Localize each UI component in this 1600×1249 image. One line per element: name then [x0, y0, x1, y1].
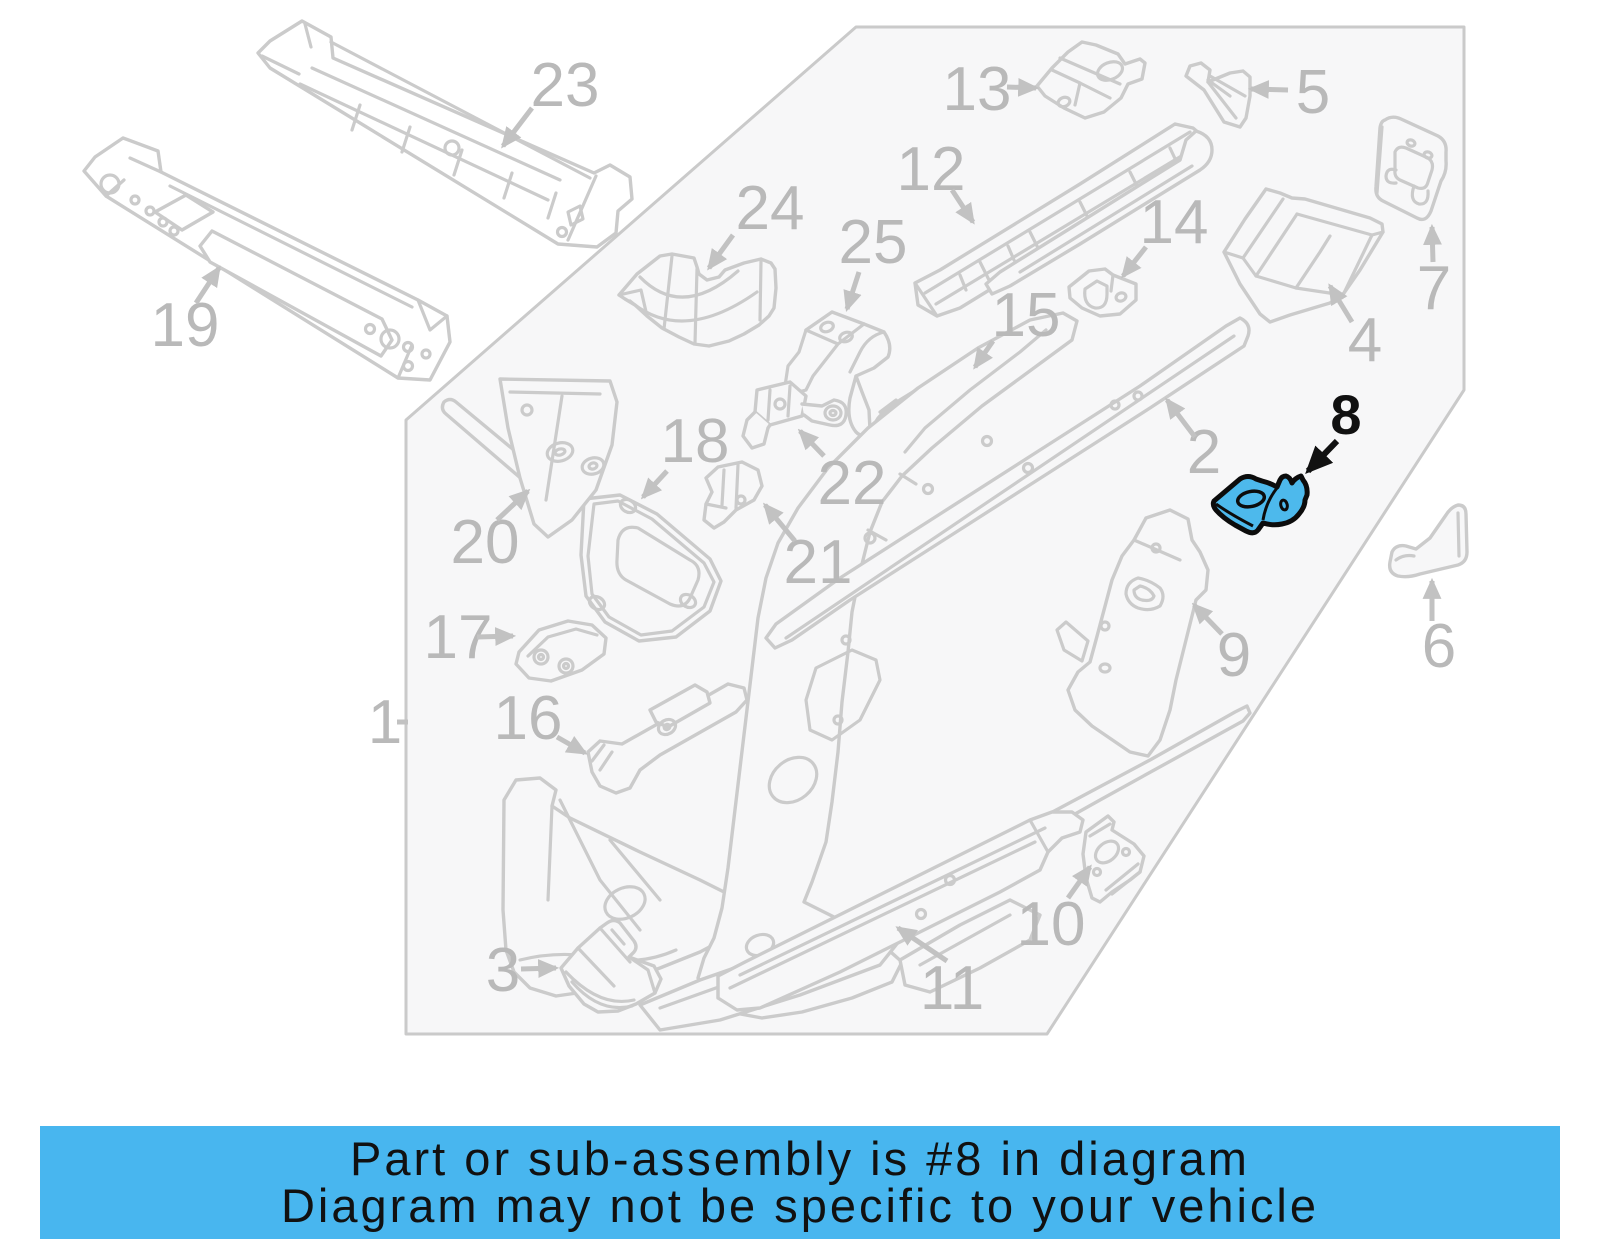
svg-text:3: 3: [486, 936, 520, 1005]
svg-text:19: 19: [151, 291, 220, 360]
svg-text:8: 8: [1330, 383, 1361, 446]
svg-text:2: 2: [1187, 418, 1221, 487]
svg-text:16: 16: [494, 684, 563, 753]
svg-text:5: 5: [1296, 58, 1330, 127]
svg-text:6: 6: [1422, 612, 1456, 681]
svg-text:13: 13: [943, 55, 1012, 124]
svg-text:7: 7: [1417, 254, 1451, 323]
svg-text:14: 14: [1140, 188, 1209, 257]
svg-text:Part or sub-assembly is #8 in: Part or sub-assembly is #8 in diagram: [350, 1132, 1250, 1185]
svg-text:11: 11: [920, 954, 984, 1023]
svg-text:Diagram may not be specific to: Diagram may not be specific to your vehi…: [281, 1179, 1319, 1232]
svg-text:24: 24: [736, 174, 805, 243]
svg-text:23: 23: [531, 51, 600, 120]
svg-text:15: 15: [992, 281, 1061, 350]
svg-text:4: 4: [1348, 306, 1382, 375]
svg-text:18: 18: [661, 407, 730, 476]
svg-text:10: 10: [1017, 890, 1086, 959]
svg-text:22: 22: [818, 449, 887, 518]
svg-text:20: 20: [451, 508, 520, 577]
svg-text:25: 25: [839, 208, 908, 277]
